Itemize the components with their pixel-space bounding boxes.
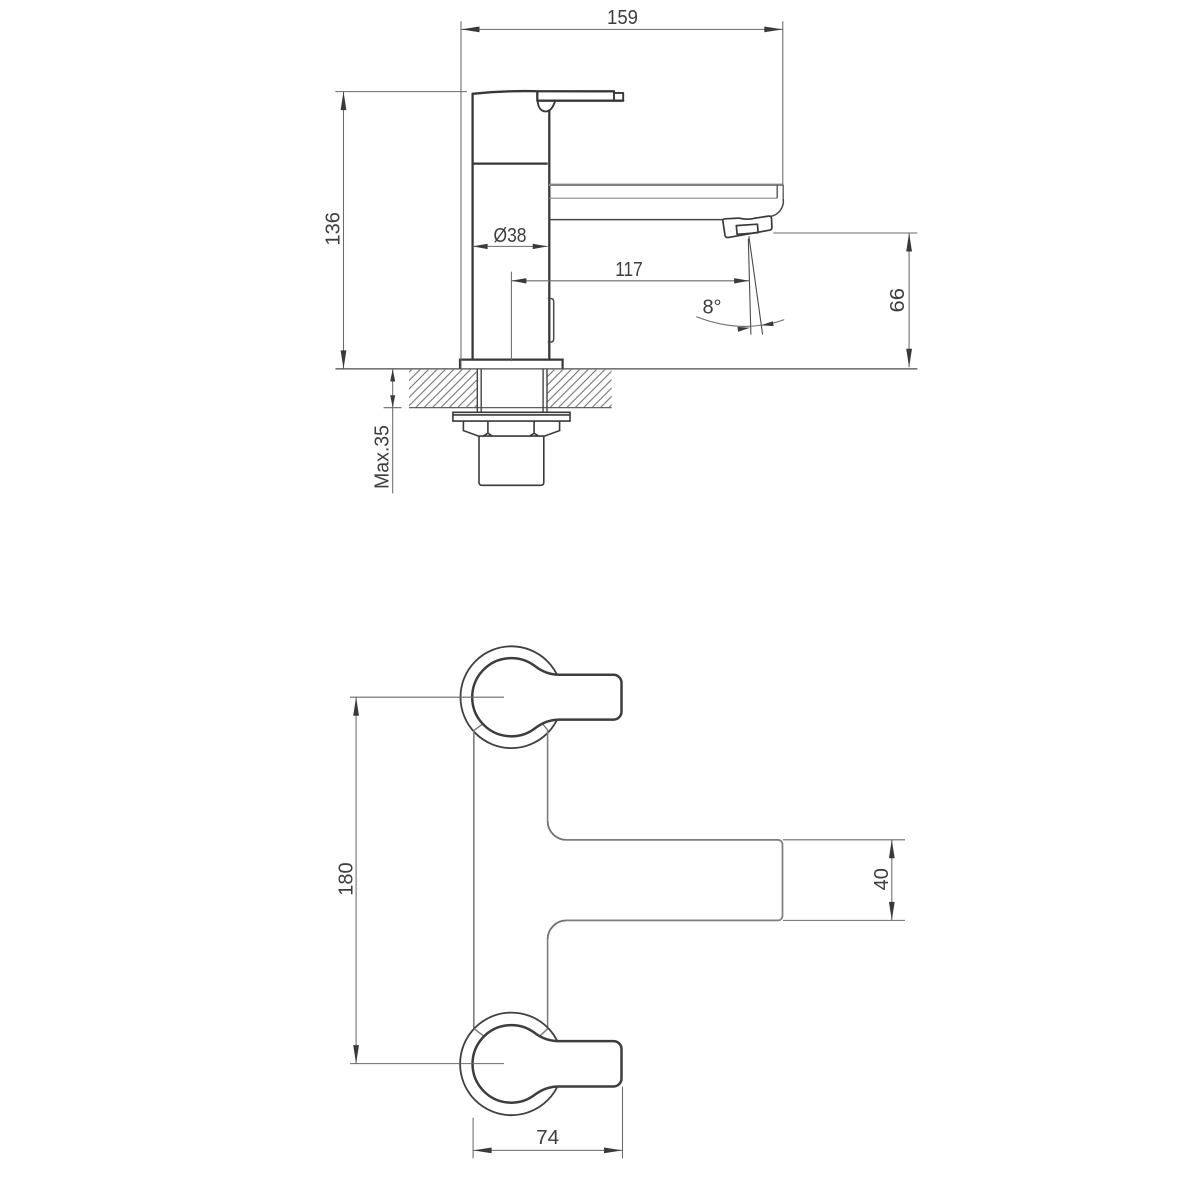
svg-text:180: 180 bbox=[335, 862, 357, 895]
svg-text:Max.35: Max.35 bbox=[371, 425, 393, 489]
svg-text:136: 136 bbox=[323, 212, 345, 246]
svg-text:159: 159 bbox=[607, 7, 638, 29]
svg-text:66: 66 bbox=[887, 288, 909, 313]
svg-text:8°: 8° bbox=[702, 297, 721, 319]
svg-text:40: 40 bbox=[871, 868, 893, 890]
svg-text:Ø38: Ø38 bbox=[494, 225, 527, 247]
svg-text:117: 117 bbox=[615, 259, 643, 281]
svg-text:74: 74 bbox=[536, 1127, 559, 1149]
